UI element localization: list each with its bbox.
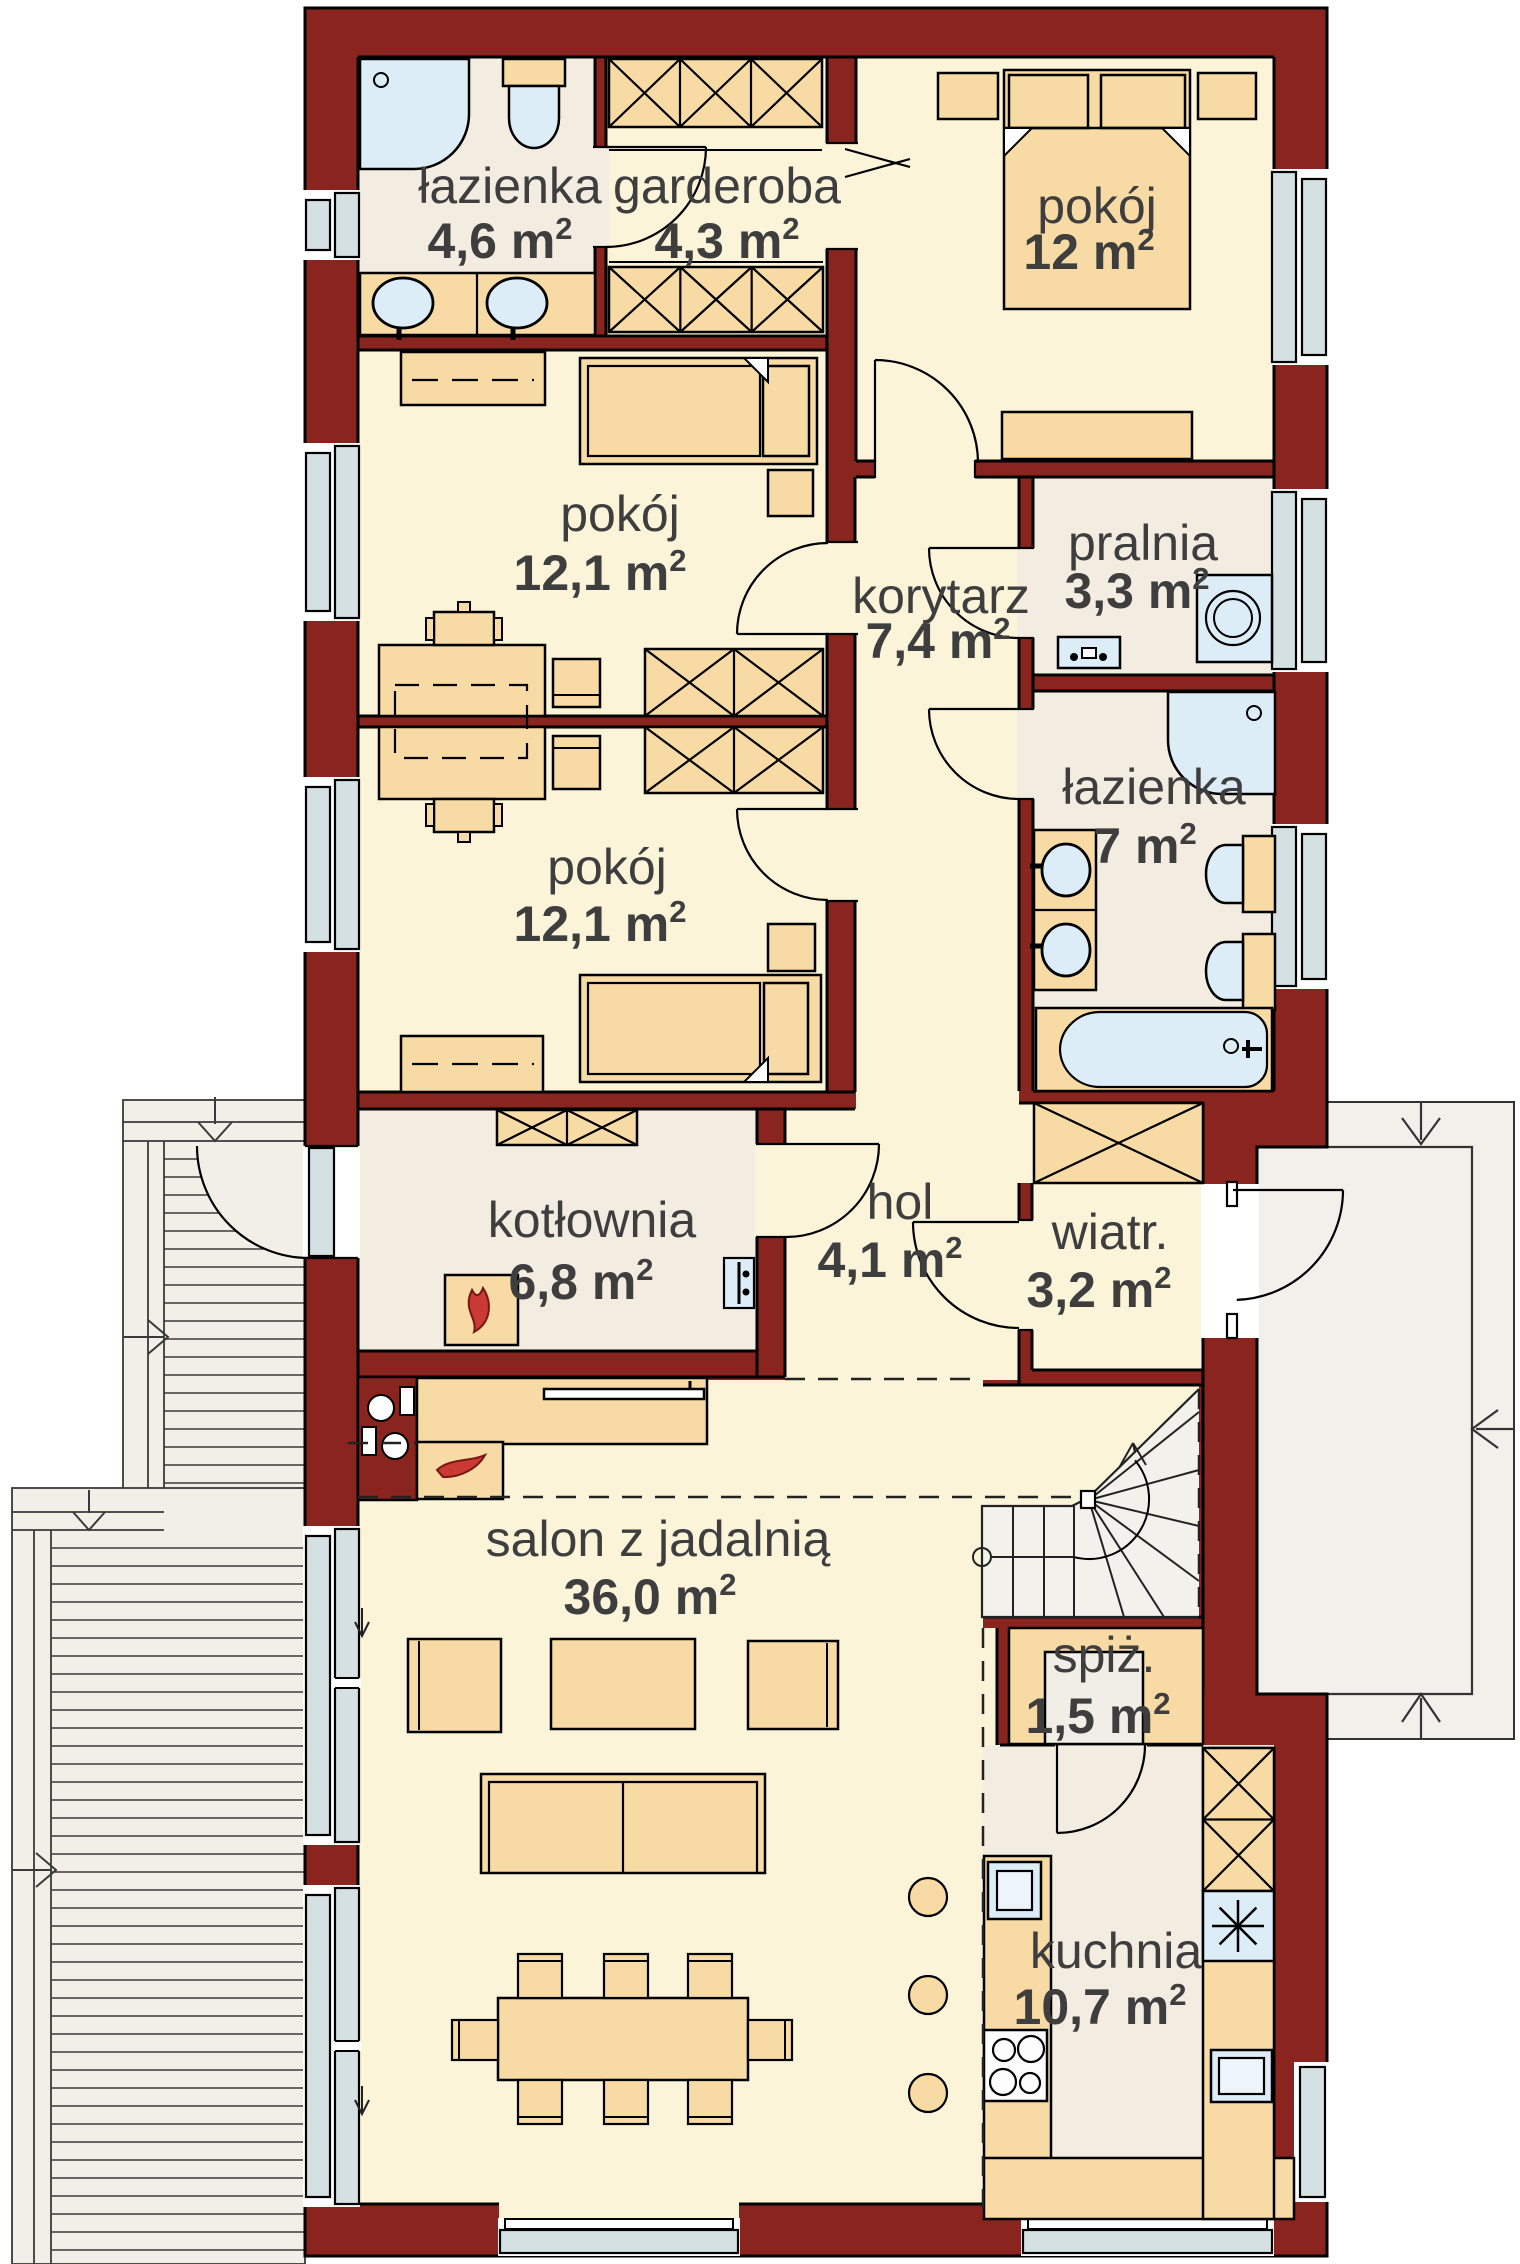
svg-text:36,0 m2: 36,0 m2 (564, 1567, 737, 1625)
svg-text:6,8 m2: 6,8 m2 (508, 1252, 653, 1310)
svg-text:łazienka: łazienka (418, 158, 602, 214)
svg-text:10,7 m2: 10,7 m2 (1014, 1977, 1187, 2035)
svg-text:12 m2: 12 m2 (1023, 222, 1154, 280)
svg-text:pokój: pokój (547, 839, 667, 895)
svg-text:4,3 m2: 4,3 m2 (654, 211, 799, 269)
svg-text:kuchnia: kuchnia (1030, 1923, 1203, 1979)
svg-text:łazienka: łazienka (1062, 759, 1246, 815)
svg-text:salon z jadalnią: salon z jadalnią (486, 1511, 831, 1567)
svg-text:kotłownia: kotłownia (488, 1192, 697, 1248)
svg-text:garderoba: garderoba (613, 158, 841, 214)
svg-text:4,1 m2: 4,1 m2 (817, 1230, 962, 1288)
svg-text:12,1 m2: 12,1 m2 (514, 543, 687, 601)
svg-text:12,1 m2: 12,1 m2 (514, 894, 687, 952)
svg-text:spiż.: spiż. (1053, 1627, 1156, 1683)
svg-text:3,3 m2: 3,3 m2 (1064, 561, 1209, 619)
svg-text:7,4 m2: 7,4 m2 (865, 611, 1010, 669)
svg-text:1,5 m2: 1,5 m2 (1025, 1686, 1170, 1744)
svg-text:3,2 m2: 3,2 m2 (1026, 1260, 1171, 1318)
svg-text:wiatr.: wiatr. (1051, 1204, 1169, 1260)
svg-text:hol: hol (867, 1174, 934, 1230)
svg-text:pokój: pokój (560, 486, 680, 542)
svg-text:4,6 m2: 4,6 m2 (427, 211, 572, 269)
